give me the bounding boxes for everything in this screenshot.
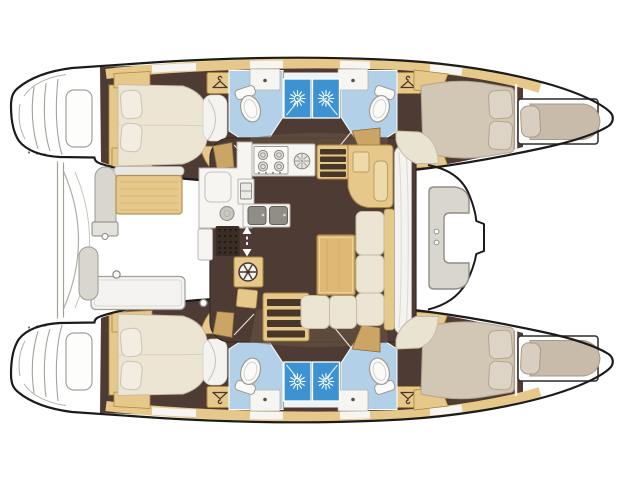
- bed-pillow: [520, 105, 541, 137]
- galley-round-hob: [294, 153, 310, 169]
- aft-head: [229, 69, 283, 140]
- nav-seat: [374, 161, 388, 201]
- galley-stove: [254, 147, 288, 175]
- bed-pillow: [120, 90, 143, 120]
- forepeak-berth: [518, 99, 600, 144]
- cockpit-bench: [116, 176, 182, 215]
- bed-pillow: [120, 123, 143, 153]
- stairs-port-hull: [317, 145, 349, 179]
- desk-lid: [353, 152, 369, 172]
- deck-fitting: [200, 299, 207, 306]
- aft-cockpit: [63, 167, 207, 311]
- saloon-table: [317, 235, 355, 295]
- bench-backrest: [114, 167, 184, 176]
- nav-station: [348, 145, 393, 208]
- galley-round-sink: [220, 207, 234, 221]
- sofa-cushion: [356, 212, 384, 256]
- sofa-cushion: [356, 255, 384, 293]
- sofa-cushion: [330, 296, 357, 329]
- cockpit-table: [91, 277, 185, 310]
- sofa-back: [384, 209, 395, 330]
- deck-fitting: [113, 271, 120, 278]
- deck-fitting: [434, 229, 439, 234]
- deck-fitting: [102, 234, 108, 240]
- cockpit-side-bench: [79, 247, 98, 300]
- bed-pillow: [488, 90, 513, 120]
- forward-cockpit-seat: [429, 187, 469, 289]
- bed-pillow: [488, 121, 513, 151]
- sliding-door-panel: [198, 229, 213, 260]
- floor-plan-canvas: [0, 0, 640, 480]
- deck-fitting: [434, 240, 439, 245]
- forward-console: [395, 146, 412, 334]
- sofa-cushion: [356, 293, 384, 326]
- sofa-cushion: [301, 296, 330, 329]
